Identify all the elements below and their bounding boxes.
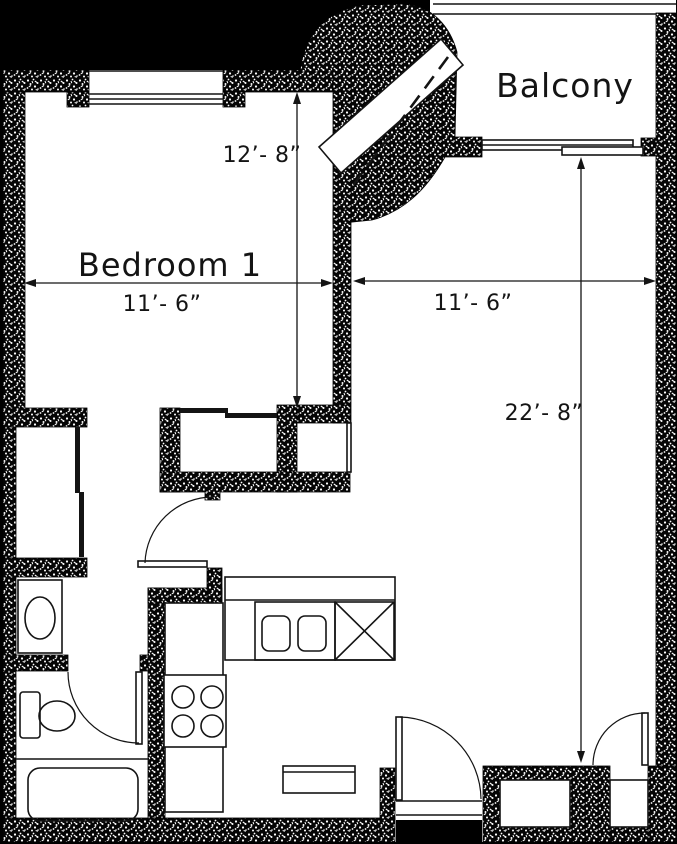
balcony-sliding-door-panel-2 [562,147,643,155]
wall-top-left-segment [3,70,89,92]
bedroom-closet-sliding-panel-2 [225,413,277,418]
dim-living-width-label: 11’- 6” [434,291,513,316]
wall-left-lower [3,408,16,842]
hall-closet-sliding-panel-1 [75,427,80,493]
wall-top-right-segment [223,70,333,92]
closet-side-panel [347,423,351,472]
dim-bedroom-height-label: 12’- 8” [223,143,302,168]
closet-entry-left-interior [500,780,570,827]
wall-left-upper [3,70,25,408]
entry-closet-door-leaf [642,713,648,765]
wall-bottom-closet-right-block [648,766,676,842]
kitchen-wall-stub [207,568,222,603]
balcony-label: Balcony [496,66,634,105]
bathroom-wall-north-left [3,655,68,671]
entry-cabinet [283,766,355,793]
entry-door-jamb [380,768,395,842]
bedroom-closet-sliding-panel-1 [180,408,228,413]
bathroom-kitchen-divider-wall [148,588,165,842]
dim-living-height-label: 22’- 8” [505,401,584,426]
closet-entry-right-interior [610,780,648,827]
wall-right [656,13,676,842]
entry-step [396,820,482,844]
kitchen-door-hinge-stub [205,488,220,500]
wall-bottom-under-right-closet [610,827,648,842]
window-jamb-right [223,92,245,107]
dim-bedroom-width-label: 11’- 6” [123,292,202,317]
window-jamb-left [67,92,89,107]
floor-plan-canvas: 12’- 8” 11’- 6” 11’- 6” 22’- 8” Bedroom … [0,0,677,844]
closet-complex-wall-south [160,472,350,492]
floor-plan: 12’- 8” 11’- 6” 11’- 6” 22’- 8” Bedroom … [0,0,677,844]
hall-closet-wall-south [3,558,87,577]
bedroom-label: Bedroom 1 [78,246,262,284]
entry-door-leaf [396,717,402,800]
hall-closet-sliding-panel-2 [79,492,84,557]
bathroom-door-leaf [136,672,142,744]
kitchen-door-threshold [138,561,207,567]
hall-closet-wall-north [3,408,87,427]
closet-complex-wall-north [297,405,350,423]
wall-bedroom-living-divider [333,210,351,423]
